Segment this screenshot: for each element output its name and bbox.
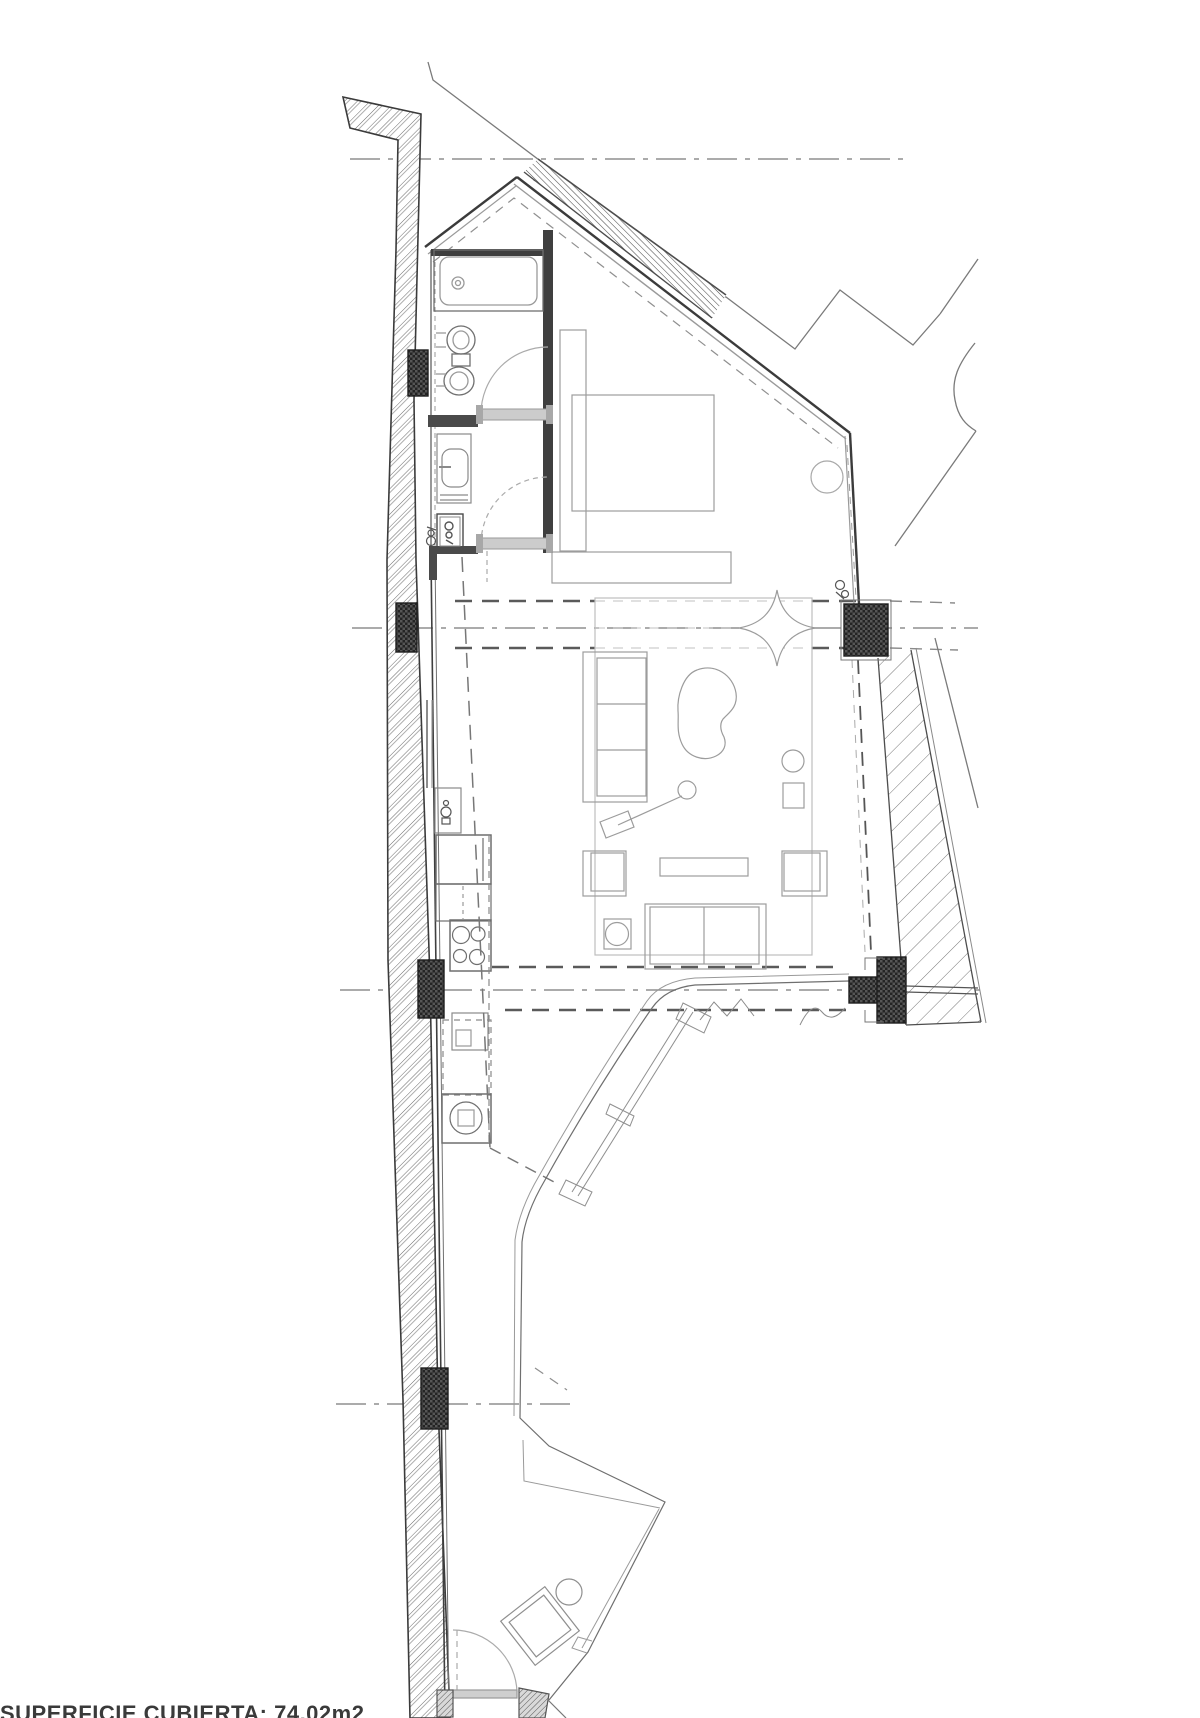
glazing-dashed-line — [858, 660, 871, 952]
washing-machine — [442, 1094, 491, 1143]
neighbor-roof-zigzag — [712, 290, 940, 349]
headboard — [560, 330, 586, 551]
structural-columns — [396, 350, 906, 1429]
west-party-wall — [343, 97, 450, 1718]
foot-bench — [552, 552, 731, 583]
bedroom — [552, 330, 731, 583]
hall-door — [476, 477, 553, 582]
side-stool — [783, 783, 804, 808]
roof-edge-band — [524, 159, 726, 318]
bidet — [436, 367, 474, 395]
ceiling-height-dashed-line — [462, 557, 556, 1183]
hob-4-burners — [450, 920, 491, 971]
column-4 — [421, 1368, 448, 1429]
pouf — [604, 919, 631, 949]
neighbor-roofline-topleft — [428, 62, 543, 181]
terrace-parapet — [520, 981, 849, 1700]
bathroom-partition — [428, 415, 478, 427]
bed — [572, 395, 714, 511]
kitchen-sink — [435, 788, 461, 833]
sofa — [583, 652, 647, 802]
fridge — [436, 835, 491, 884]
bathtub — [434, 250, 543, 311]
column-5 — [841, 600, 891, 660]
bench-sofa — [645, 904, 766, 969]
terrace-door — [437, 1630, 566, 1718]
floor-plan-canvas: SUPERFICIE CUBIERTA: 74.02m2 — [0, 0, 1200, 1718]
lower-cabinet — [443, 1020, 491, 1095]
east-parapet — [852, 648, 986, 1025]
ceiling-light — [811, 461, 843, 493]
floor-lamp — [600, 781, 696, 838]
toilet — [436, 326, 475, 366]
pipe-symbol-east — [836, 581, 849, 600]
duct-shaft — [437, 514, 463, 549]
column-3 — [418, 960, 444, 1018]
area-caption: SUPERFICIE CUBIERTA: 74.02m2 — [0, 1701, 364, 1718]
shower-tray — [501, 1579, 582, 1665]
column-2 — [396, 603, 417, 652]
bathroom-walls — [428, 230, 553, 580]
tv-console — [660, 858, 748, 876]
coffee-table — [678, 668, 736, 759]
column-6 — [849, 957, 906, 1023]
washbasin — [437, 434, 471, 503]
terrace — [437, 974, 849, 1718]
bathroom-east-wall — [543, 230, 553, 553]
side-table — [782, 750, 804, 772]
plant-star — [739, 590, 815, 666]
kitchen-cabinet — [436, 884, 491, 921]
armchair-right — [782, 851, 827, 896]
armchair-left — [583, 851, 626, 896]
bathroom-door — [476, 347, 553, 424]
column-1 — [408, 350, 428, 396]
floor-plan-drawing — [0, 0, 1200, 1718]
living-room — [583, 590, 827, 969]
hidden-edge-dashes — [535, 1368, 567, 1390]
